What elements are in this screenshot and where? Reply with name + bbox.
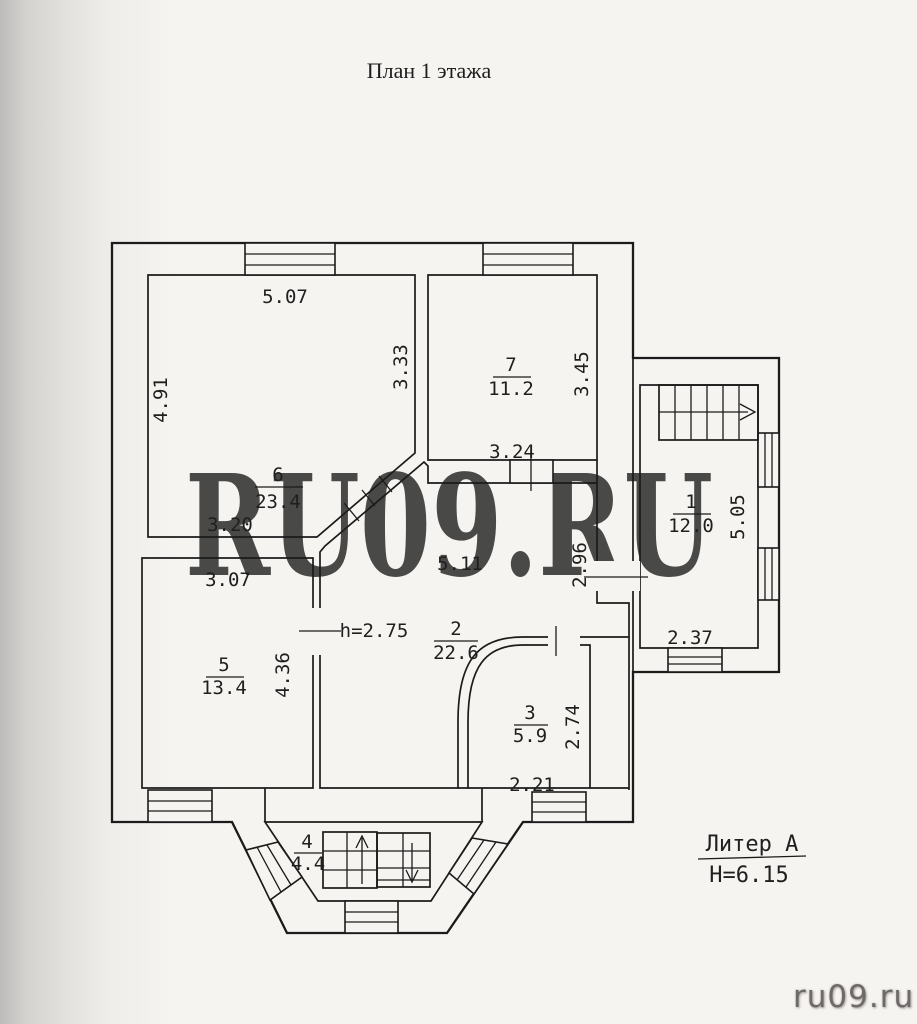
- room-6-area: 23.4: [255, 491, 301, 513]
- staircase-room1: [659, 385, 758, 440]
- room-5-number: 5: [218, 654, 229, 676]
- page-title: План 1 этажа: [367, 58, 492, 83]
- room-6-number: 6: [272, 464, 283, 486]
- staircase-room4: [323, 832, 430, 888]
- dim-room1-bottom: 2.37: [667, 627, 713, 649]
- door-room5-to-hall: [299, 608, 341, 655]
- stair-arrow-down: [406, 843, 418, 882]
- stair-arrow-up: [356, 836, 368, 884]
- dim-room2-top: 5.11: [437, 553, 483, 575]
- litera-annotation: Литер А H=6.15: [698, 832, 806, 888]
- room-7-label: 7 11.2: [488, 354, 534, 400]
- litera-label: Литер А: [706, 832, 799, 857]
- room-3-number: 3: [524, 702, 535, 724]
- scanned-floor-plan-page: RU09.RU План 1 этажа: [0, 0, 917, 1024]
- window-room1-right-lower: [758, 548, 779, 600]
- room-1-area: 12.0: [668, 515, 714, 537]
- room-3-label: 3 5.9: [513, 702, 548, 747]
- dim-room5-right: 4.36: [272, 652, 294, 698]
- window-bay-bottom: [345, 901, 398, 933]
- room-7-area: 11.2: [488, 378, 534, 400]
- room-2-label: 2 22.6: [433, 618, 479, 664]
- dim-room5-top: 3.07: [205, 569, 251, 591]
- dim-room3-bottom: 2.21: [509, 774, 555, 796]
- window-bottom-left: [148, 790, 212, 822]
- dim-room2-right: 2.96: [569, 542, 591, 588]
- dim-room6-left: 4.91: [150, 377, 172, 423]
- floor-plan-drawing: RU09.RU План 1 этажа: [0, 0, 917, 1024]
- dim-room6-right: 3.33: [390, 344, 412, 390]
- room-2-number: 2: [450, 618, 461, 640]
- dim-room7-bottom: 3.24: [489, 441, 535, 463]
- dim-room7-right: 3.45: [571, 351, 593, 397]
- window-room6-top: [245, 243, 335, 275]
- building-height-label: H=6.15: [709, 863, 788, 888]
- dim-room1-right: 5.05: [727, 494, 749, 540]
- room-1-number: 1: [685, 491, 696, 513]
- room-2-area: 22.6: [433, 642, 479, 664]
- room-7-number: 7: [505, 354, 516, 376]
- dim-room6-top: 5.07: [262, 286, 308, 308]
- dim-room2-ceiling-height: h=2.75: [340, 620, 409, 642]
- dim-room6-bottom: 3.20: [207, 514, 253, 536]
- room-4-area: 4.4: [291, 853, 325, 875]
- window-room7-top: [483, 243, 573, 275]
- site-credit-watermark: ru09.ru: [793, 979, 914, 1015]
- window-bottom-right: [532, 792, 586, 822]
- room-3-area: 5.9: [513, 725, 547, 747]
- window-bay-right-slant: [449, 838, 508, 894]
- room-5-area: 13.4: [201, 677, 247, 699]
- door-room3: [548, 626, 580, 656]
- door-hall-to-room1: [584, 561, 648, 591]
- room-5-label: 5 13.4: [201, 654, 247, 699]
- room-4-label: 4 4.4: [291, 831, 325, 875]
- window-room1-right-upper: [758, 433, 779, 487]
- dim-room3-right: 2.74: [562, 704, 584, 750]
- room-4-number: 4: [301, 831, 312, 853]
- window-room1-bottom: [668, 648, 722, 672]
